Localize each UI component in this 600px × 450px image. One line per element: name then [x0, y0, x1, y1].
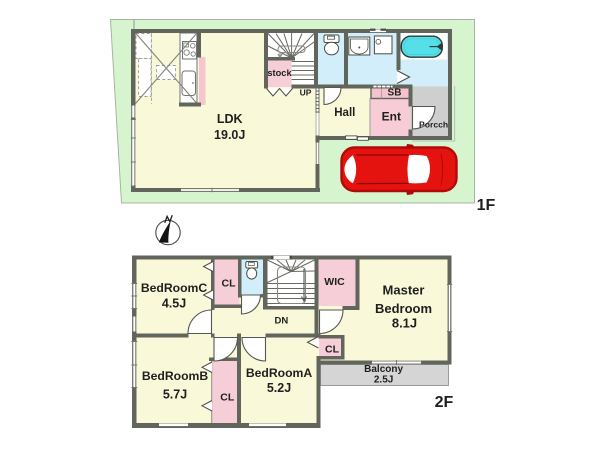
svg-text:BedRoomA: BedRoomA	[246, 366, 313, 380]
svg-text:Master: Master	[383, 283, 425, 298]
svg-text:stock: stock	[267, 68, 292, 78]
svg-text:8.1J: 8.1J	[392, 316, 417, 331]
svg-text:CL: CL	[220, 392, 235, 404]
svg-text:SB: SB	[388, 88, 402, 99]
svg-text:Porcch: Porcch	[419, 120, 448, 130]
svg-text:Ent: Ent	[382, 110, 401, 124]
svg-text:Bedroom: Bedroom	[375, 301, 432, 316]
svg-text:5.7J: 5.7J	[163, 387, 187, 401]
svg-text:UP: UP	[300, 87, 312, 97]
svg-text:19.0J: 19.0J	[214, 128, 245, 142]
svg-text:LDK: LDK	[217, 112, 243, 126]
svg-text:BedRoomC: BedRoomC	[141, 281, 208, 295]
svg-text:1F: 1F	[477, 197, 496, 214]
svg-text:Hall: Hall	[334, 107, 355, 119]
svg-text:CL: CL	[222, 278, 237, 290]
svg-text:CL: CL	[325, 344, 340, 356]
svg-text:2.5J: 2.5J	[374, 374, 393, 385]
svg-text:5.2J: 5.2J	[267, 381, 291, 395]
svg-text:DN: DN	[275, 316, 289, 327]
svg-text:2F: 2F	[435, 394, 454, 411]
svg-text:BedRoomB: BedRoomB	[142, 369, 209, 383]
svg-text:WIC: WIC	[324, 276, 345, 288]
svg-text:4.5J: 4.5J	[162, 297, 186, 311]
